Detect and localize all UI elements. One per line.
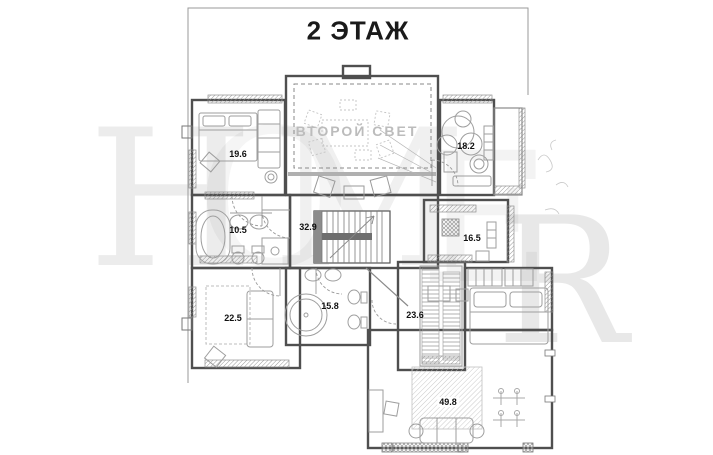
floor-plan-drawing <box>0 0 713 455</box>
room-label-23-6: 23.6 <box>406 310 424 320</box>
chairs-49-icon <box>493 389 525 428</box>
balcony-top-right <box>494 108 522 195</box>
room-label-19-6: 19.6 <box>229 149 247 159</box>
room-label-10-5: 10.5 <box>229 225 247 235</box>
room-label-49-8: 49.8 <box>437 397 459 407</box>
stool-19-icon <box>200 152 220 172</box>
toilet-15-icon <box>348 290 367 304</box>
room-label-22-5: 22.5 <box>224 313 242 323</box>
bed-49-icon <box>456 288 548 344</box>
furniture <box>196 110 548 443</box>
room-label-15-8: 15.8 <box>321 301 339 311</box>
seat-16-icon <box>476 251 489 261</box>
column-16-icon <box>442 219 459 236</box>
landscape-sketch <box>538 140 568 214</box>
bed-22-icon <box>247 291 273 347</box>
room-label-32-9: 32.9 <box>299 222 317 232</box>
table-19-icon <box>265 171 277 183</box>
staircase <box>314 211 390 263</box>
desk-icon <box>369 390 399 432</box>
shelf-16-icon <box>487 222 496 248</box>
bidet-icon <box>348 315 367 329</box>
room-label-16-5: 16.5 <box>463 233 481 243</box>
shelf-18-icon <box>484 126 493 160</box>
room-label-18-2: 18.2 <box>457 141 475 151</box>
sinks-15-icon <box>305 269 341 281</box>
shower-icon <box>262 238 288 264</box>
second-light-label: ВТОРОЙ СВЕТ <box>296 123 419 139</box>
floor-plan-page: H O M E R <box>0 0 713 455</box>
wardrobe-icon <box>420 266 462 366</box>
sofa-19-icon <box>258 110 280 168</box>
round-table-icon <box>470 155 488 173</box>
bench-18-icon <box>453 176 491 186</box>
